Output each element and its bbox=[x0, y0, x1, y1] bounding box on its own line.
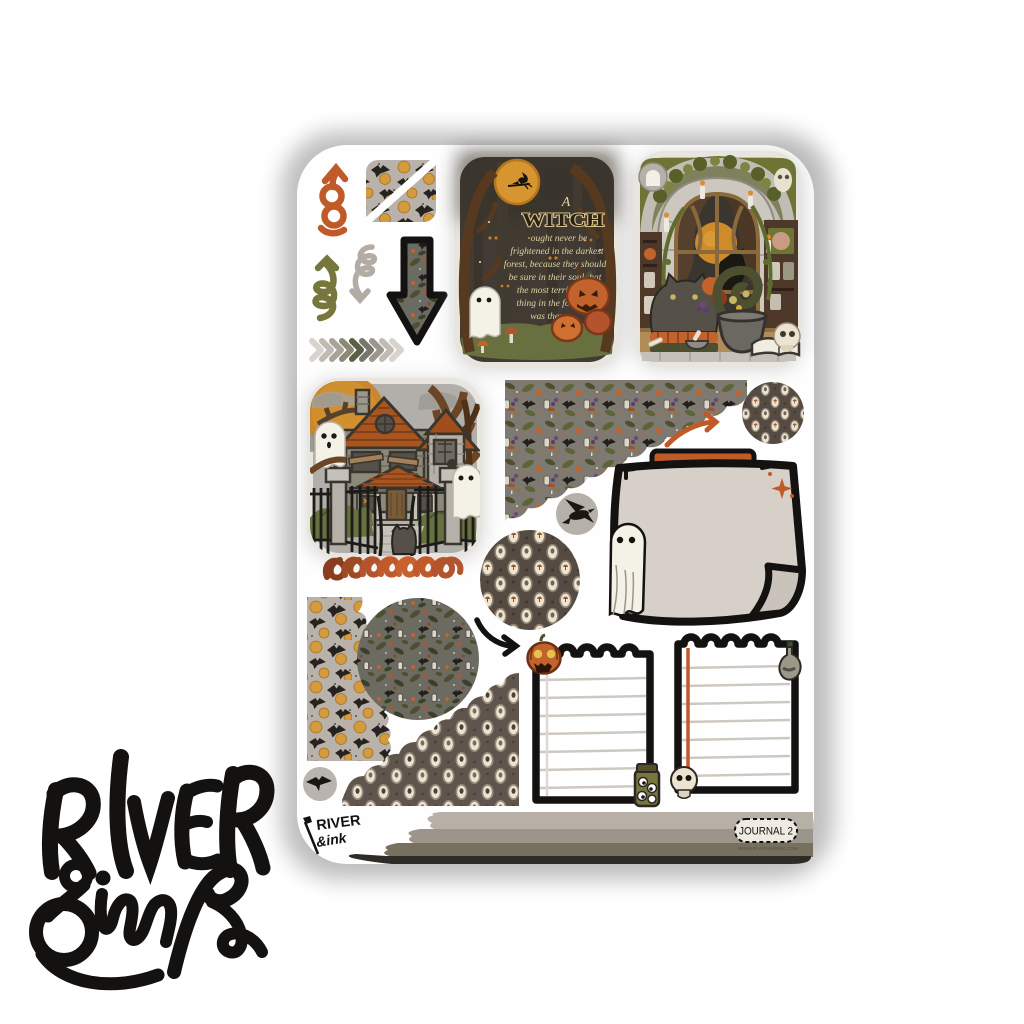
svg-text:forest, because they should: forest, because they should bbox=[504, 259, 607, 270]
svg-text:WITCH: WITCH bbox=[522, 210, 604, 231]
svg-text:A: A bbox=[561, 195, 571, 210]
svg-text:WWW.RIVERANDINK.COM: WWW.RIVERANDINK.COM bbox=[738, 846, 798, 852]
svg-text:frightened in the darkest: frightened in the darkest bbox=[510, 246, 603, 257]
svg-text:JOURNAL 2: JOURNAL 2 bbox=[739, 826, 793, 838]
svg-text:ought never be: ought never be bbox=[531, 234, 587, 244]
